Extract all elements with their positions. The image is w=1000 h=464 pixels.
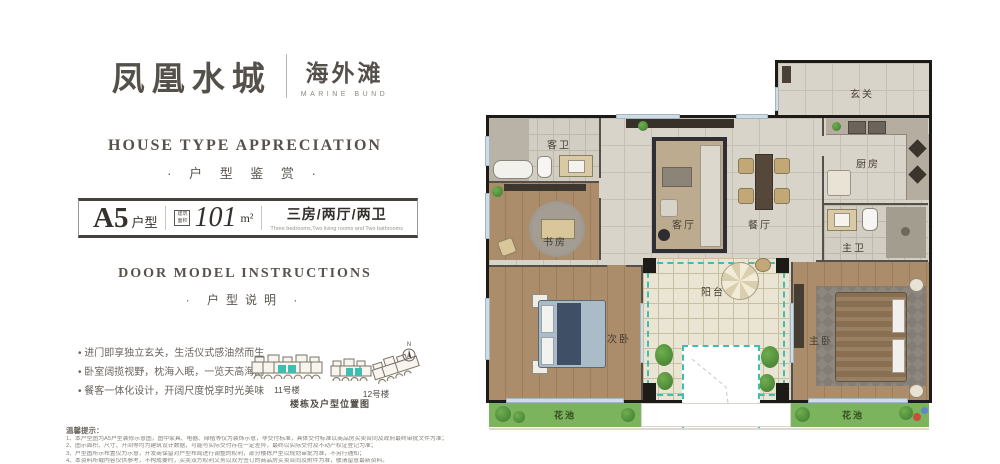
area-label-chip: 建筑面积 — [174, 210, 190, 226]
room-master-bedroom: 主卧 — [791, 262, 929, 400]
study-chair — [497, 237, 518, 258]
house-layout: 三房/两厅/两卫 Three bedrooms,Two living rooms… — [270, 204, 403, 232]
room-living-label: 客厅 — [672, 217, 696, 232]
disclaimer-line-3: 3、户型图所示布置仅为示意，开发商保留对户型布局进行调整的权利，部分楼栋户型以规… — [66, 451, 486, 458]
area-unit: m² — [240, 211, 253, 226]
fb-right-shrub-1 — [795, 407, 810, 422]
brochure-page: 凤凰水城 海外滩 MARINE BUND HOUSE TYPE APPRECIA… — [0, 0, 1000, 464]
spec-divider-2 — [261, 206, 262, 230]
pillow-a2 — [541, 337, 554, 365]
master-dresser — [794, 284, 804, 348]
spec-divider — [165, 206, 166, 230]
flower-bed-right: 花池 — [791, 403, 929, 427]
dining-table — [755, 154, 773, 210]
nightstand-m1 — [909, 278, 924, 292]
instructions-title-cn: · 户型说明 · — [60, 291, 430, 308]
brand-name-cn: 凤凰水城 — [112, 52, 272, 100]
stove-burner-2 — [908, 165, 926, 183]
wall-bedroom2-top — [489, 265, 607, 267]
building-11-label: 11号楼 — [274, 384, 300, 396]
room-guest-bath-label: 客卫 — [547, 137, 571, 152]
kitchen-sink-1 — [848, 121, 866, 134]
patio-chair — [755, 258, 771, 272]
wall-guestbath-living — [599, 118, 601, 178]
balcony-shrub-3 — [761, 346, 779, 368]
plan-base-line — [489, 428, 929, 430]
room-entrance-label: 玄关 — [850, 86, 874, 101]
fb-right-flowers — [913, 413, 921, 421]
kitchen-counter-top — [826, 118, 928, 135]
room-balcony-label: 阳台 — [701, 284, 725, 299]
pillow-a1 — [541, 305, 554, 333]
brand-sub: 海外滩 MARINE BUND — [301, 54, 389, 98]
fb-right-shrub-2 — [899, 406, 913, 420]
appreciation-title-cn: · 户 型 鉴 赏 · — [60, 163, 430, 182]
stove-burner-1 — [908, 139, 926, 157]
wall-dining-kitchen-a — [822, 118, 824, 136]
bookshelf — [504, 184, 586, 191]
living-rug — [652, 137, 727, 253]
room-entrance: 玄关 — [775, 60, 932, 118]
masterbath-sink — [834, 213, 850, 227]
brand-sub-cn: 海外滩 — [305, 54, 383, 88]
appreciation-title-en: HOUSE TYPE APPRECIATION — [60, 137, 430, 155]
room-study-label: 书房 — [543, 234, 567, 249]
disclaimer-line-2: 2、图示面积、尺寸、开间等均为建筑设计数据，可能与实际交付存在一定差异，最终以实… — [66, 443, 486, 450]
masterbath-toilet — [862, 208, 878, 231]
room-master-bedroom-label: 主卧 — [809, 333, 833, 348]
pillar-balcony-bl — [643, 383, 656, 400]
logo-divider — [286, 54, 287, 98]
dining-chair-4 — [774, 188, 790, 204]
balcony-shrub-2 — [657, 372, 673, 390]
wall-bedroom2-top-b — [626, 265, 641, 267]
disclaimer-line-4: 4、本资料所载内容仅供参考，不构成要约，买卖双方权利义务以双方签订的商品房买卖合… — [66, 458, 486, 464]
sofa-main — [700, 145, 721, 247]
wall-study-hall — [599, 198, 601, 260]
coffee-table — [662, 167, 692, 187]
dining-chair-1 — [738, 158, 754, 174]
brand-logo: 凤凰水城 海外滩 MARINE BUND — [60, 52, 440, 100]
kitchen-plant — [832, 122, 841, 131]
house-area: 建筑面积 101 m² — [174, 202, 253, 234]
room-master-bath: 主卫 — [824, 205, 928, 260]
patio-umbrella — [721, 262, 759, 300]
shower-drain — [901, 227, 910, 236]
house-type: A5 户型 — [93, 202, 157, 235]
pillar-balcony-tl — [643, 258, 656, 273]
building-11-elevation — [250, 354, 324, 382]
study-plant — [492, 186, 503, 197]
dining-chair-3 — [738, 188, 754, 204]
pillow-m1 — [892, 299, 905, 333]
living-plant — [638, 121, 648, 131]
pillar-balcony-br — [776, 383, 789, 400]
fb-left-shrub-3 — [621, 408, 635, 422]
balcony-shrub-1 — [655, 344, 673, 366]
pillow-m2 — [892, 339, 905, 373]
house-type-suffix: 户型 — [131, 212, 157, 231]
fb-left-shrub-1 — [495, 406, 511, 422]
fb-right-flowers-2 — [921, 407, 928, 414]
masterbath-vanity — [827, 209, 857, 231]
compass-icon — [402, 348, 416, 362]
sink — [568, 160, 585, 173]
layout-cn: 三房/两厅/两卫 — [287, 204, 387, 224]
window-left-3 — [485, 298, 490, 360]
fridge — [827, 170, 851, 196]
floor-speaker — [658, 229, 670, 241]
window-top-1 — [616, 114, 680, 119]
pillar-balcony-tr — [776, 258, 789, 273]
room-bedroom-second: 次卧 — [489, 265, 641, 400]
area-value: 101 — [194, 202, 236, 234]
location-map-caption: 楼栋及户型位置图 — [190, 397, 470, 410]
instructions-title-en: DOOR MODEL INSTRUCTIONS — [60, 266, 430, 282]
dining-chair-2 — [774, 158, 790, 174]
bed-second — [538, 300, 606, 368]
wall-masterbed-top — [816, 260, 928, 262]
disclaimer-line-1: 1、本户型图为A5户型装修示意图，图中家具、电器、绿植等仅为装饰示意，非交付标准… — [66, 436, 486, 443]
building-location-zone: 11号楼 12号楼 — [238, 346, 438, 394]
room-guest-bath: 客卫 — [489, 118, 599, 181]
balcony-shrub-4 — [759, 374, 775, 392]
room-master-bath-label: 主卫 — [842, 240, 866, 255]
room-bedroom-second-label: 次卧 — [607, 331, 631, 346]
building-11: 11号楼 — [250, 354, 324, 396]
entrance-window — [775, 87, 779, 111]
compass: N — [401, 342, 417, 367]
toilet — [537, 156, 552, 178]
armchair — [660, 199, 678, 217]
void-strip — [641, 403, 791, 427]
bathtub — [493, 160, 533, 179]
house-spec-box: A5 户型 建筑面积 101 m² 三房/两厅/两卫 Three bedroom… — [78, 198, 418, 238]
duvet-accent — [557, 303, 581, 365]
flower-bed-left-label: 花池 — [554, 409, 576, 422]
window-top-2 — [736, 114, 768, 119]
disclaimer-title: 温馨提示： — [66, 425, 486, 436]
kitchen-counter-side — [906, 134, 929, 200]
dining-set — [738, 150, 788, 212]
house-type-code: A5 — [93, 202, 128, 235]
bed-master — [835, 292, 907, 382]
bath-vanity — [559, 155, 593, 177]
room-kitchen-label: 厨房 — [856, 156, 880, 171]
flower-bed-right-label: 花池 — [842, 409, 864, 422]
window-left-1 — [485, 136, 490, 166]
flower-bed-left: 花池 — [489, 403, 641, 427]
masterbed-balcony-window — [790, 303, 794, 363]
layout-en: Three bedrooms,Two living rooms and Two … — [270, 226, 403, 232]
kitchen-sink-2 — [868, 121, 886, 134]
fb-left-shrub-2 — [513, 411, 525, 423]
shoe-cabinet — [782, 66, 791, 83]
floor-plan: 玄关 客卫 书房 — [486, 58, 934, 432]
room-study: 书房 — [489, 183, 599, 260]
nightstand-m2 — [909, 384, 924, 398]
room-dining-label: 餐厅 — [748, 217, 772, 232]
disclaimer-block: 温馨提示： 1、本户型图为A5户型装修示意图，图中家具、电器、绿植等仅为装饰示意… — [66, 425, 486, 464]
brand-sub-en: MARINE BUND — [301, 91, 389, 98]
masterbath-shower — [886, 207, 926, 258]
window-left-2 — [485, 193, 490, 239]
